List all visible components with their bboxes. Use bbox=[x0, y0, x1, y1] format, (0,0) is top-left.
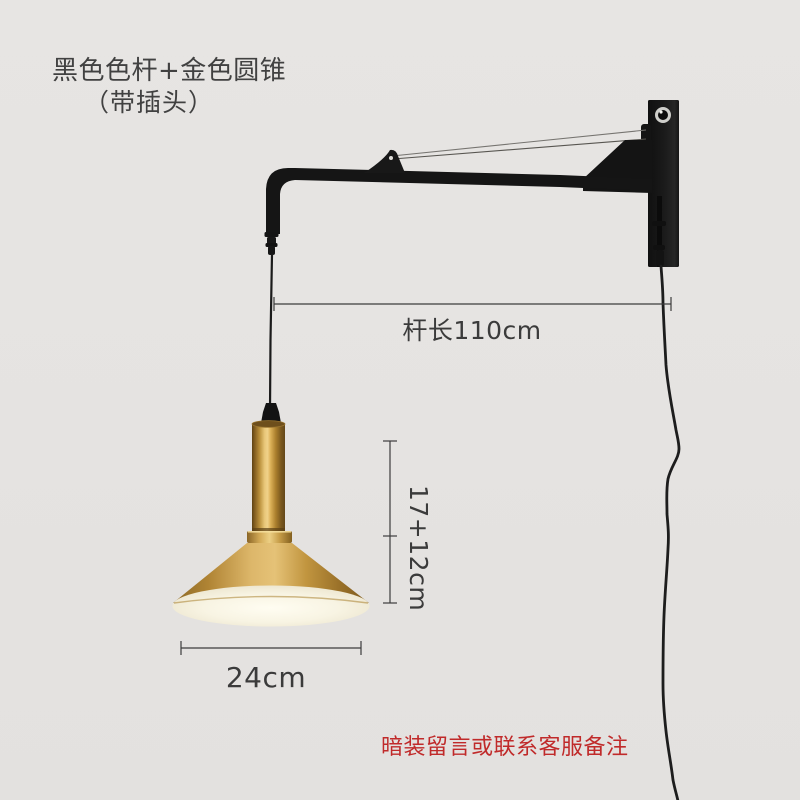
arm-tip-fitting-nipple bbox=[268, 246, 275, 255]
diffuser bbox=[173, 586, 370, 627]
conduit-clip-upper bbox=[652, 221, 666, 226]
cable-bracket-hole bbox=[389, 156, 393, 160]
product-title-line1: 黑色色杆+金色圆锥 bbox=[52, 50, 286, 87]
arm-length-dimension bbox=[274, 297, 671, 311]
cable-bracket bbox=[364, 150, 405, 173]
product-title-line2: （带插头） bbox=[84, 83, 214, 119]
power-cord bbox=[661, 266, 679, 800]
pendant-cord bbox=[270, 254, 272, 410]
gold-cylinder-socket bbox=[252, 423, 285, 531]
shade-diameter-dimension bbox=[181, 641, 361, 655]
lamp-illustration bbox=[0, 0, 800, 800]
arm-tip-fitting bbox=[265, 232, 279, 237]
wall-mount-plate bbox=[648, 100, 679, 267]
support-cable-upper bbox=[392, 130, 646, 156]
conduit-clip-lower bbox=[653, 245, 665, 250]
cylinder-top-face bbox=[252, 421, 285, 428]
eyelet-highlight bbox=[659, 110, 662, 113]
cord-strain-relief bbox=[656, 250, 664, 266]
collar-ring bbox=[247, 531, 292, 543]
swing-arm bbox=[266, 168, 652, 234]
pendant-height-dimension bbox=[383, 441, 397, 603]
arm-tip-fitting-rib bbox=[267, 237, 276, 244]
service-note: 暗装留言或联系客服备注 bbox=[381, 729, 629, 761]
shade-diameter-label: 24cm bbox=[186, 661, 346, 694]
pendant-height-label: 17+12cm bbox=[404, 485, 433, 597]
arm-length-label: 杆长110cm bbox=[352, 311, 592, 347]
cylinder-bottom-shadow bbox=[252, 528, 285, 531]
lamp-top-cap bbox=[261, 403, 281, 423]
product-image: 黑色色杆+金色圆锥 （带插头） 杆长110cm 17+12cm 24cm 暗装留… bbox=[0, 0, 800, 800]
eyelet-screw bbox=[657, 109, 670, 122]
